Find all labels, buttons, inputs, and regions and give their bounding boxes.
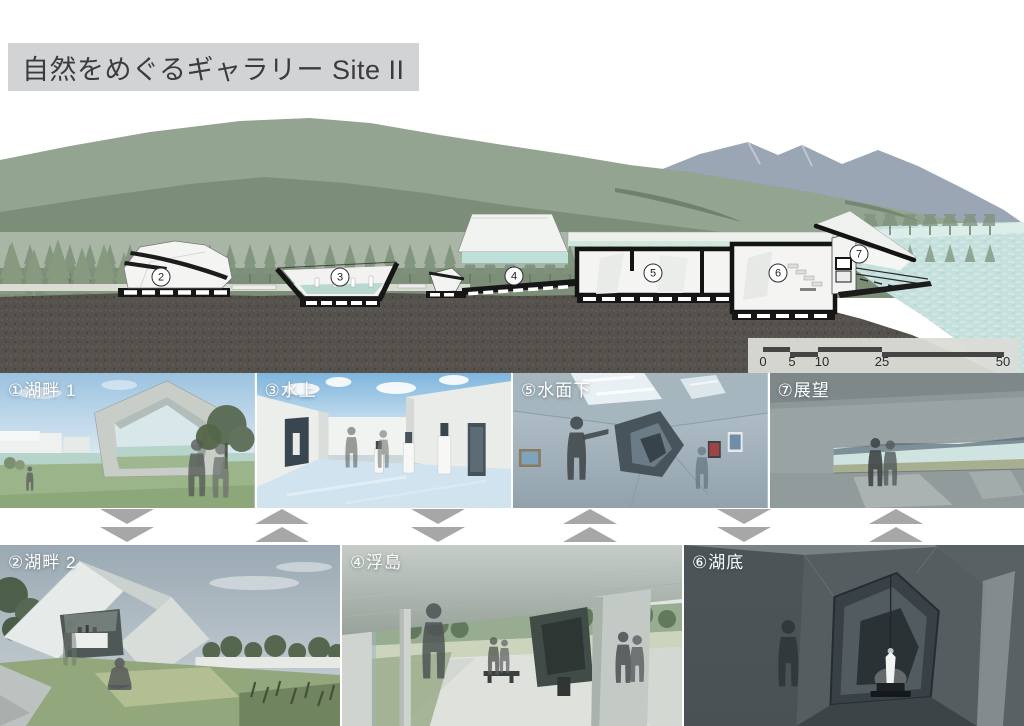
arrow-down-icon — [717, 509, 771, 542]
arrow-up-icon — [255, 509, 309, 542]
arrow-down-icon — [411, 509, 465, 542]
title-bar: 自然をめぐるギャラリー Site II — [8, 43, 419, 91]
gallery-row-bottom: ②湖畔 2 — [0, 545, 1024, 726]
scale-tick: 10 — [815, 354, 829, 369]
panel-label-floating-island: ④浮島 — [350, 548, 402, 573]
panel-label-on-water: ③水上 — [265, 376, 317, 401]
scale-tick: 0 — [759, 354, 766, 369]
render-observation: ⑦展望 — [770, 373, 1024, 508]
section-marker-2: 2 — [152, 268, 171, 287]
section-marker-3: 3 — [331, 268, 350, 287]
scale-tick: 25 — [875, 354, 889, 369]
gallery-row-top: ①湖畔 1 — [0, 373, 1024, 508]
circulation-arrows — [0, 508, 1024, 545]
scale-bar-segment — [882, 352, 1004, 357]
section-drawing-image — [0, 92, 1024, 373]
panel-label-lakeside-1: ①湖畔 1 — [8, 376, 76, 401]
render-lakeside-2: ②湖畔 2 — [0, 545, 340, 726]
panel-label-observation: ⑦展望 — [778, 376, 830, 401]
render-floating-island: ④浮島 — [342, 545, 682, 726]
section-marker-6: 6 — [769, 264, 788, 283]
page-title: 自然をめぐるギャラリー Site II — [22, 48, 405, 87]
scale-tick: 5 — [788, 354, 795, 369]
arrow-down-icon — [100, 509, 154, 542]
render-below-surface: ⑤水面下 — [513, 373, 768, 508]
section-marker-7: 7 — [850, 245, 869, 264]
render-lake-bottom: ⑥湖底 — [684, 545, 1024, 726]
scale-bar-segment — [763, 347, 790, 352]
presentation-board: 自然をめぐるギャラリー Site II — [0, 0, 1024, 726]
panel-label-lake-bottom: ⑥湖底 — [692, 548, 744, 573]
arrow-up-icon — [869, 509, 923, 542]
panel-label-lakeside-2: ②湖畔 2 — [8, 548, 76, 573]
scale-tick: 50 — [996, 354, 1010, 369]
panel-label-below-surface: ⑤水面下 — [521, 376, 591, 401]
render-lakeside-1: ①湖畔 1 — [0, 373, 255, 508]
site-section-drawing — [0, 92, 1024, 373]
scale-bar-segment — [818, 347, 882, 352]
arrow-up-icon — [563, 509, 617, 542]
render-on-water: ③水上 — [257, 373, 512, 508]
scale-bar: 0 5 10 25 50 — [748, 338, 1019, 373]
section-marker-4: 4 — [505, 267, 524, 286]
section-marker-5: 5 — [644, 264, 663, 283]
